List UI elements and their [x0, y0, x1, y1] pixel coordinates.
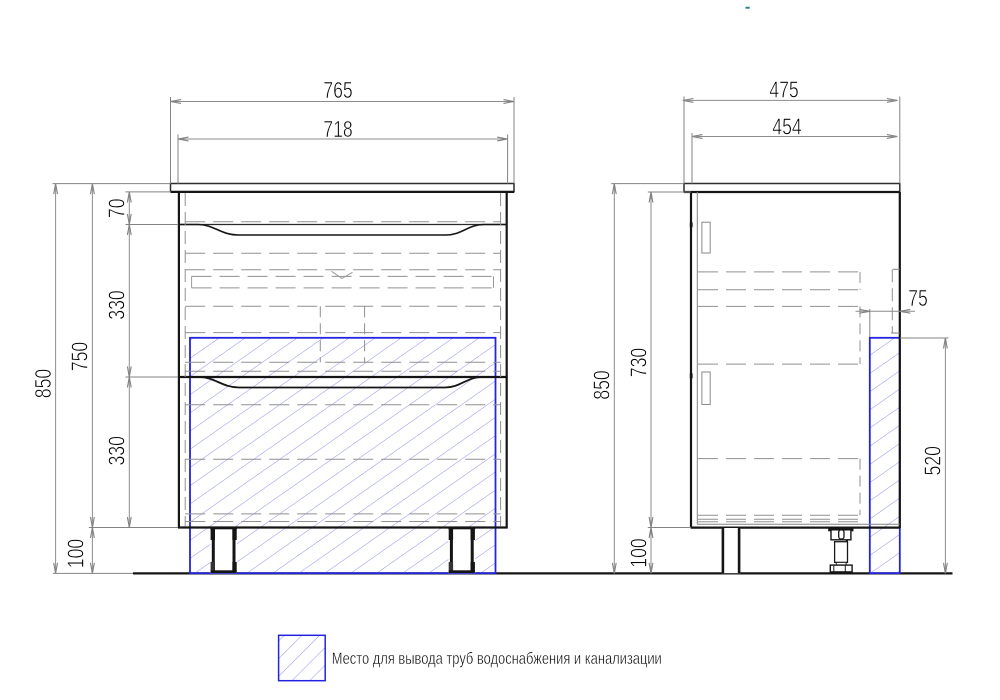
- svg-text:454: 454: [772, 114, 802, 140]
- svg-text:475: 475: [769, 77, 799, 103]
- svg-text:330: 330: [104, 290, 130, 320]
- svg-text:100: 100: [63, 539, 89, 569]
- svg-text:765: 765: [323, 78, 353, 104]
- svg-text:718: 718: [323, 117, 353, 143]
- svg-text:70: 70: [104, 198, 130, 218]
- svg-text:850: 850: [31, 369, 57, 399]
- svg-text:750: 750: [68, 342, 94, 372]
- svg-text:850: 850: [589, 370, 615, 400]
- svg-text:330: 330: [104, 436, 130, 466]
- svg-text:520: 520: [921, 446, 947, 476]
- svg-text:730: 730: [626, 348, 652, 378]
- svg-text:100: 100: [626, 538, 652, 568]
- svg-text:75: 75: [908, 286, 928, 312]
- svg-text:Место для вывода труб водоснаб: Место для вывода труб водоснабжения и ка…: [332, 649, 662, 668]
